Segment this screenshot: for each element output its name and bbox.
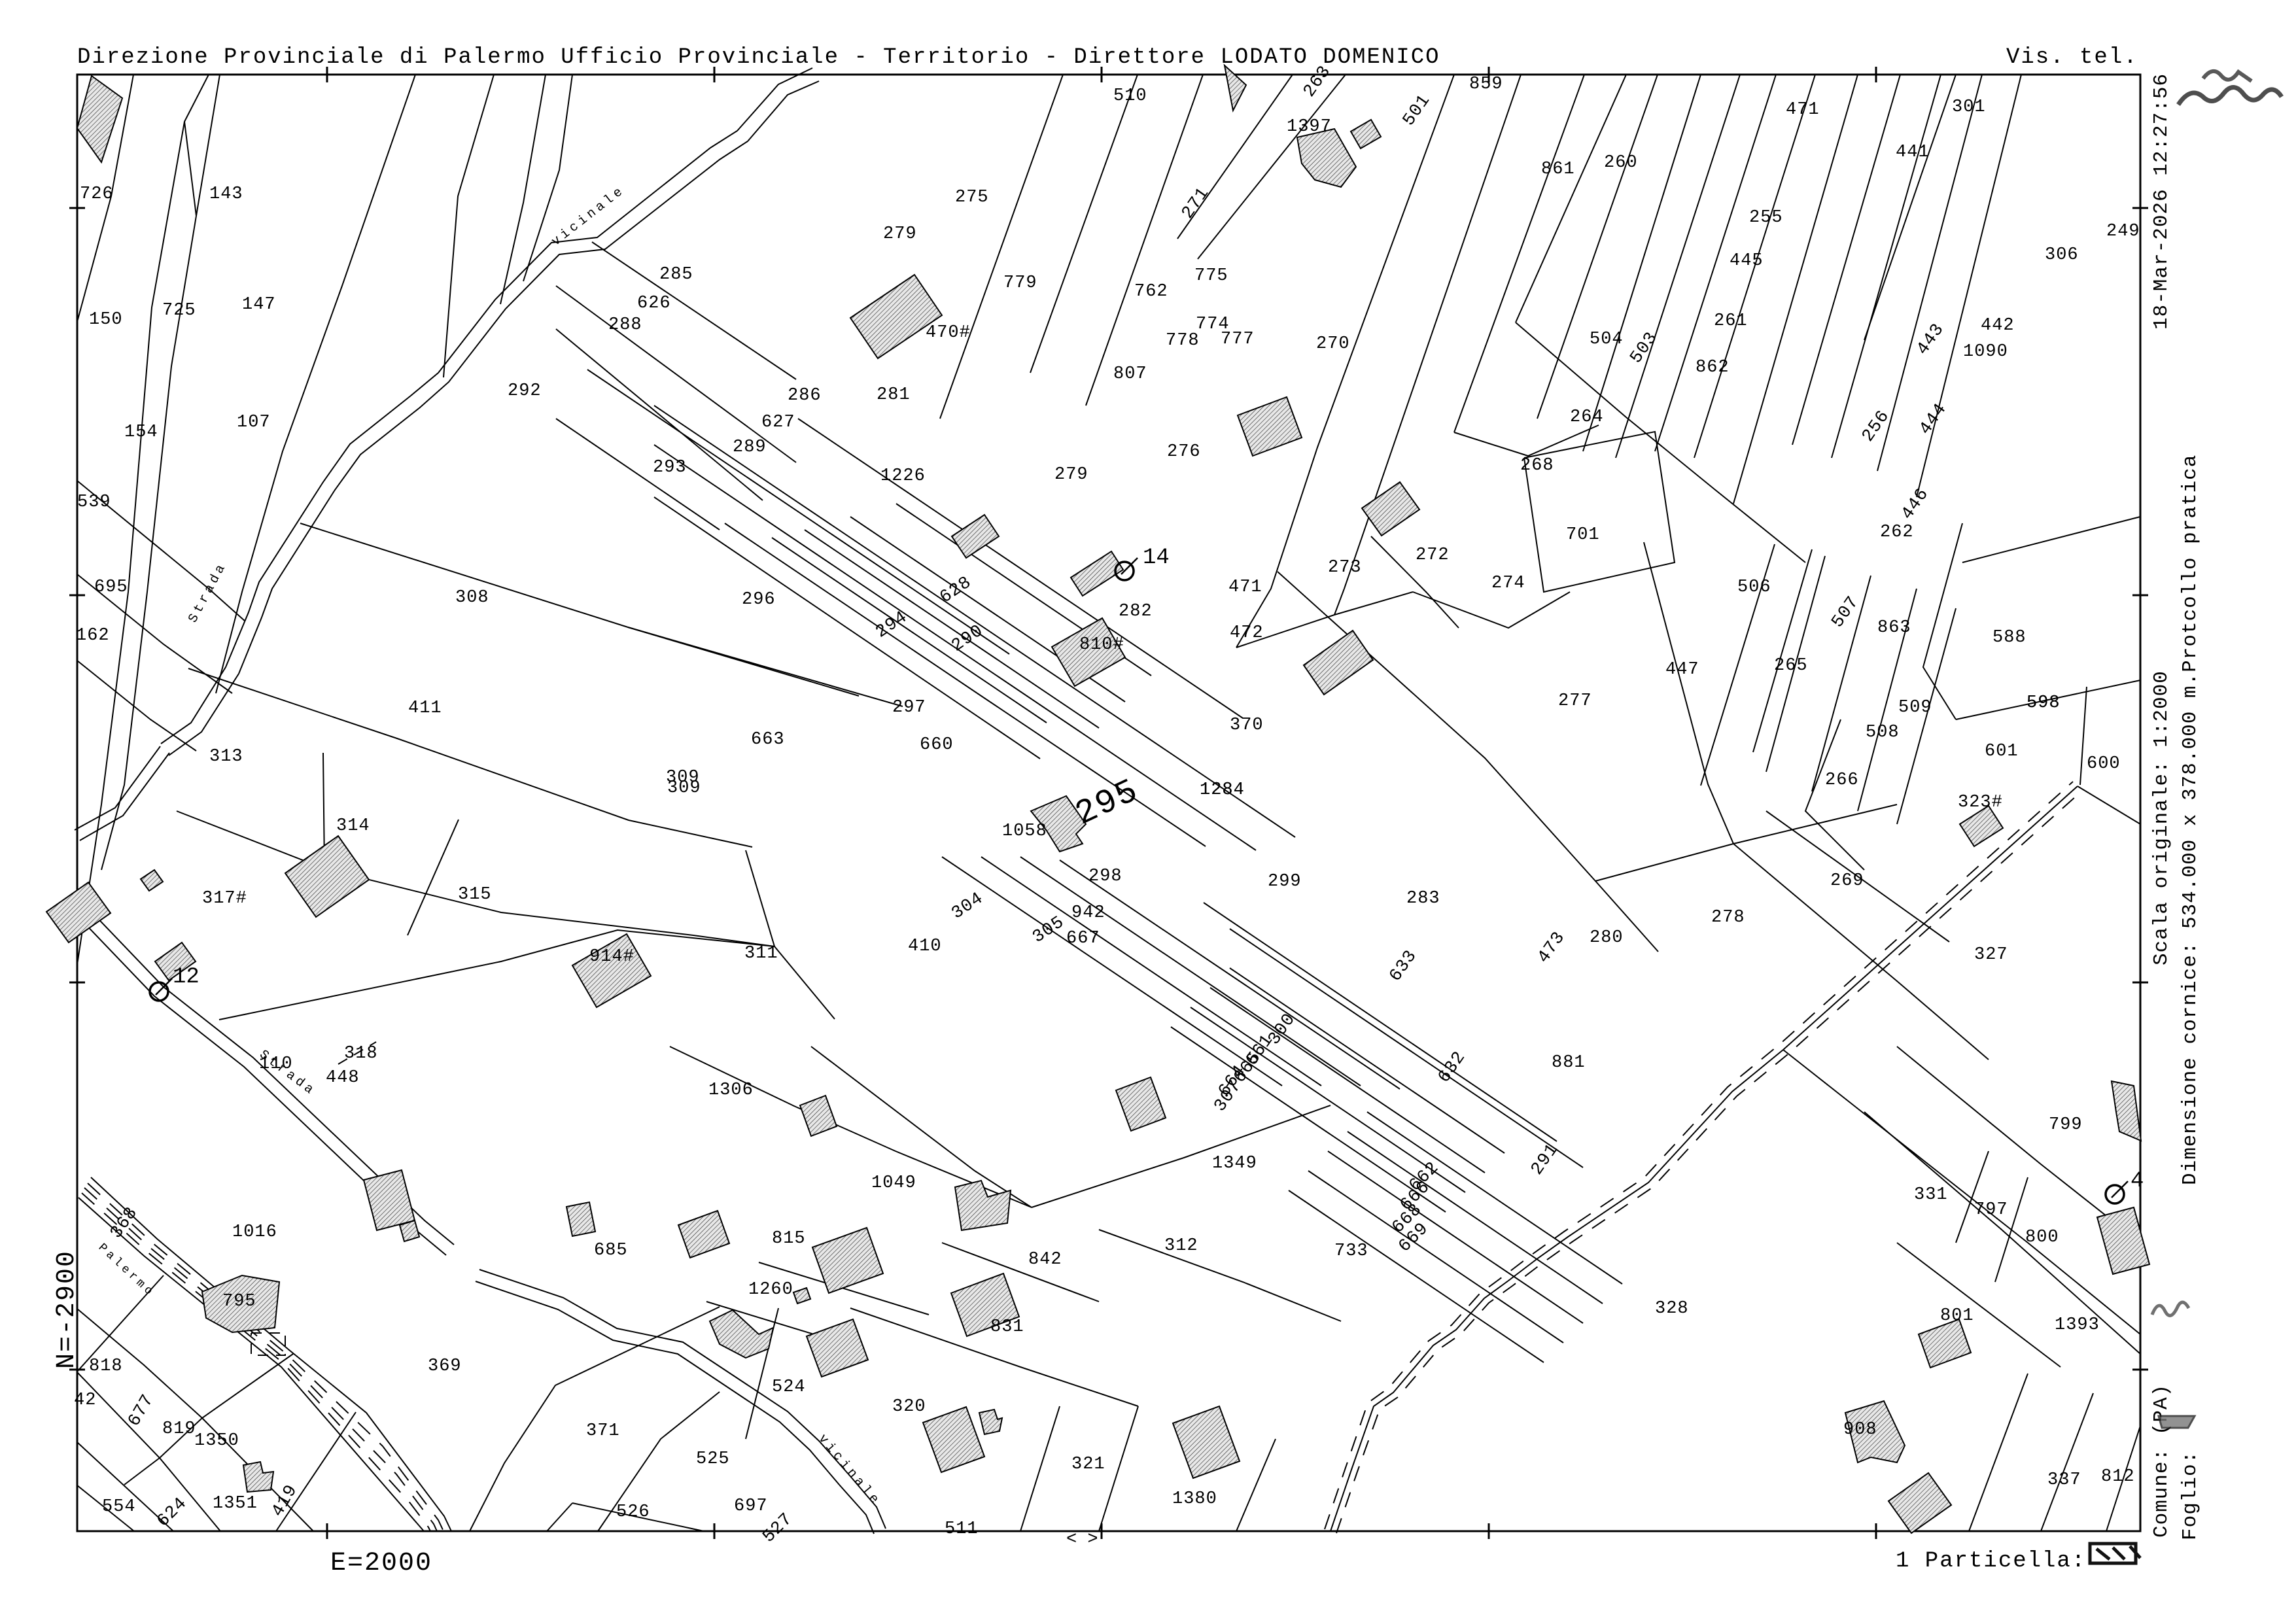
svg-text:598: 598 bbox=[2026, 693, 2061, 713]
svg-text:Dimensione cornice: 534.000 x: Dimensione cornice: 534.000 x 378.000 m.… bbox=[2179, 455, 2202, 1185]
svg-text:819: 819 bbox=[162, 1419, 196, 1439]
svg-text:< >: < > bbox=[1066, 1530, 1098, 1549]
svg-text:1393: 1393 bbox=[2055, 1315, 2100, 1335]
svg-text:733: 733 bbox=[1334, 1241, 1368, 1261]
svg-text:317#: 317# bbox=[202, 889, 247, 908]
svg-text:445: 445 bbox=[1730, 251, 1764, 271]
svg-text:4: 4 bbox=[2131, 1169, 2144, 1194]
svg-text:775: 775 bbox=[1194, 266, 1228, 286]
svg-text:278: 278 bbox=[1711, 908, 1745, 927]
svg-text:441: 441 bbox=[1896, 143, 1930, 162]
svg-text:369: 369 bbox=[428, 1357, 462, 1376]
svg-text:799: 799 bbox=[2049, 1115, 2083, 1135]
svg-text:249: 249 bbox=[2106, 222, 2140, 241]
svg-text:311: 311 bbox=[744, 944, 778, 963]
svg-text:725: 725 bbox=[162, 301, 196, 320]
svg-text:42: 42 bbox=[74, 1391, 96, 1410]
svg-text:279: 279 bbox=[1054, 465, 1088, 485]
svg-text:600: 600 bbox=[2087, 754, 2121, 774]
svg-text:289: 289 bbox=[733, 438, 767, 457]
svg-text:306: 306 bbox=[2045, 245, 2079, 265]
svg-text:524: 524 bbox=[772, 1377, 806, 1397]
svg-text:277: 277 bbox=[1558, 691, 1592, 711]
svg-text:777: 777 bbox=[1221, 330, 1255, 349]
svg-text:471: 471 bbox=[1786, 100, 1820, 120]
svg-text:1 Particella:: 1 Particella: bbox=[1896, 1549, 2086, 1574]
svg-text:1090: 1090 bbox=[1963, 342, 2008, 362]
svg-text:807: 807 bbox=[1113, 364, 1147, 384]
svg-text:309: 309 bbox=[667, 778, 701, 798]
svg-text:1397: 1397 bbox=[1287, 117, 1332, 137]
svg-text:296: 296 bbox=[742, 590, 776, 610]
svg-text:272: 272 bbox=[1416, 545, 1450, 565]
svg-text:539: 539 bbox=[77, 493, 111, 512]
svg-text:1349: 1349 bbox=[1212, 1154, 1257, 1173]
svg-text:697: 697 bbox=[734, 1497, 768, 1516]
svg-text:1351: 1351 bbox=[213, 1494, 258, 1514]
svg-text:Vis. tel.: Vis. tel. bbox=[2006, 45, 2138, 70]
svg-text:328: 328 bbox=[1655, 1299, 1689, 1319]
svg-text:281: 281 bbox=[877, 385, 911, 405]
svg-text:262: 262 bbox=[1880, 523, 1914, 542]
svg-text:795: 795 bbox=[222, 1292, 256, 1311]
svg-text:863: 863 bbox=[1877, 618, 1911, 638]
svg-text:275: 275 bbox=[955, 188, 989, 207]
svg-text:842: 842 bbox=[1028, 1250, 1062, 1270]
svg-text:107: 107 bbox=[237, 413, 271, 432]
svg-text:162: 162 bbox=[76, 626, 110, 646]
svg-text:801: 801 bbox=[1940, 1306, 1974, 1326]
svg-text:601: 601 bbox=[1985, 742, 2019, 761]
svg-text:447: 447 bbox=[1665, 660, 1699, 680]
svg-text:Comune: (PA): Comune: (PA) bbox=[2150, 1384, 2173, 1538]
svg-text:442: 442 bbox=[1981, 316, 2015, 336]
svg-text:308: 308 bbox=[455, 588, 489, 608]
svg-text:264: 264 bbox=[1570, 407, 1604, 427]
svg-text:831: 831 bbox=[990, 1317, 1024, 1337]
svg-text:859: 859 bbox=[1469, 75, 1503, 94]
svg-text:14: 14 bbox=[1143, 545, 1170, 570]
svg-text:762: 762 bbox=[1134, 282, 1168, 302]
svg-text:778: 778 bbox=[1166, 331, 1200, 351]
svg-text:626: 626 bbox=[637, 294, 671, 313]
svg-text:1049: 1049 bbox=[871, 1173, 916, 1193]
svg-text:1058: 1058 bbox=[1002, 822, 1047, 841]
svg-text:274: 274 bbox=[1491, 574, 1525, 593]
svg-text:293: 293 bbox=[653, 458, 687, 477]
svg-text:297: 297 bbox=[892, 698, 926, 718]
svg-text:337: 337 bbox=[2047, 1470, 2081, 1490]
svg-text:810#: 810# bbox=[1079, 635, 1124, 655]
svg-text:1350: 1350 bbox=[194, 1431, 239, 1451]
svg-text:800: 800 bbox=[2025, 1228, 2059, 1247]
svg-text:526: 526 bbox=[616, 1502, 650, 1522]
svg-text:1380: 1380 bbox=[1172, 1489, 1217, 1509]
svg-text:695: 695 bbox=[94, 578, 128, 597]
svg-text:279: 279 bbox=[883, 224, 917, 244]
svg-text:472: 472 bbox=[1230, 623, 1264, 643]
svg-text:268: 268 bbox=[1520, 456, 1554, 476]
svg-text:663: 663 bbox=[751, 730, 785, 750]
svg-text:270: 270 bbox=[1316, 334, 1350, 354]
svg-text:701: 701 bbox=[1566, 525, 1600, 545]
svg-text:881: 881 bbox=[1552, 1053, 1586, 1073]
svg-text:331: 331 bbox=[1914, 1185, 1948, 1205]
svg-text:411: 411 bbox=[408, 699, 442, 718]
svg-text:370: 370 bbox=[1230, 716, 1264, 735]
svg-text:509: 509 bbox=[1898, 698, 1932, 718]
svg-text:410: 410 bbox=[908, 937, 942, 956]
svg-text:286: 286 bbox=[788, 386, 822, 406]
svg-text:511: 511 bbox=[945, 1519, 979, 1539]
svg-text:914#: 914# bbox=[589, 947, 635, 967]
svg-text:Direzione Provinciale di Paler: Direzione Provinciale di Palermo Ufficio… bbox=[77, 45, 1440, 70]
svg-text:298: 298 bbox=[1088, 867, 1122, 886]
svg-text:260: 260 bbox=[1604, 153, 1638, 173]
svg-text:315: 315 bbox=[458, 885, 492, 905]
svg-text:255: 255 bbox=[1749, 208, 1783, 228]
svg-text:301: 301 bbox=[1952, 97, 1986, 117]
svg-text:273: 273 bbox=[1328, 558, 1362, 578]
svg-text:Scala originale: 1:2000: Scala originale: 1:2000 bbox=[2150, 670, 2173, 965]
svg-text:908: 908 bbox=[1843, 1420, 1877, 1440]
svg-text:143: 143 bbox=[209, 184, 243, 204]
svg-text:1306: 1306 bbox=[708, 1081, 754, 1100]
svg-text:320: 320 bbox=[892, 1397, 926, 1417]
svg-text:862: 862 bbox=[1696, 358, 1730, 377]
svg-text:154: 154 bbox=[124, 423, 158, 442]
svg-text:1226: 1226 bbox=[880, 466, 926, 486]
svg-text:627: 627 bbox=[761, 413, 795, 432]
svg-text:470#: 470# bbox=[926, 323, 971, 343]
svg-text:1016: 1016 bbox=[232, 1222, 277, 1242]
svg-text:285: 285 bbox=[659, 265, 693, 285]
svg-text:313: 313 bbox=[209, 747, 243, 767]
svg-text:266: 266 bbox=[1825, 770, 1859, 790]
svg-text:18-Mar-2026 12:27:56: 18-Mar-2026 12:27:56 bbox=[2150, 73, 2173, 330]
svg-text:667: 667 bbox=[1066, 929, 1100, 948]
svg-text:506: 506 bbox=[1737, 578, 1771, 597]
svg-text:861: 861 bbox=[1541, 160, 1575, 179]
svg-text:508: 508 bbox=[1866, 723, 1900, 742]
svg-text:312: 312 bbox=[1164, 1236, 1198, 1256]
svg-text:448: 448 bbox=[326, 1068, 360, 1088]
svg-text:299: 299 bbox=[1268, 872, 1302, 891]
svg-text:265: 265 bbox=[1774, 656, 1808, 676]
svg-text:150: 150 bbox=[89, 310, 123, 330]
svg-text:147: 147 bbox=[242, 295, 276, 315]
svg-text:797: 797 bbox=[1974, 1200, 2008, 1220]
svg-text:815: 815 bbox=[772, 1229, 806, 1249]
svg-text:314: 314 bbox=[336, 816, 370, 836]
svg-text:726: 726 bbox=[80, 184, 114, 204]
svg-text:323#: 323# bbox=[1958, 793, 2003, 812]
svg-text:283: 283 bbox=[1406, 889, 1440, 908]
svg-text:Foglio:: Foglio: bbox=[2179, 1451, 2202, 1540]
svg-text:779: 779 bbox=[1003, 273, 1037, 293]
svg-text:318: 318 bbox=[344, 1044, 378, 1064]
svg-text:269: 269 bbox=[1830, 871, 1864, 891]
svg-text:288: 288 bbox=[608, 315, 642, 335]
svg-text:261: 261 bbox=[1714, 311, 1748, 331]
svg-text:280: 280 bbox=[1590, 928, 1624, 948]
svg-text:327: 327 bbox=[1974, 945, 2008, 965]
svg-text:1260: 1260 bbox=[748, 1280, 793, 1300]
svg-text:1284: 1284 bbox=[1200, 780, 1245, 800]
svg-text:321: 321 bbox=[1071, 1455, 1105, 1474]
svg-text:510: 510 bbox=[1113, 86, 1147, 106]
svg-text:818: 818 bbox=[89, 1357, 123, 1376]
svg-text:282: 282 bbox=[1119, 602, 1153, 621]
svg-text:525: 525 bbox=[696, 1449, 730, 1469]
svg-text:660: 660 bbox=[920, 735, 954, 755]
svg-text:812: 812 bbox=[2101, 1467, 2135, 1487]
svg-text:E=2000: E=2000 bbox=[330, 1549, 432, 1578]
svg-text:12: 12 bbox=[173, 965, 200, 990]
svg-text:371: 371 bbox=[586, 1421, 620, 1441]
svg-text:554: 554 bbox=[102, 1497, 136, 1517]
svg-text:504: 504 bbox=[1590, 330, 1624, 349]
svg-text:685: 685 bbox=[594, 1241, 628, 1260]
svg-text:588: 588 bbox=[1992, 628, 2026, 648]
svg-text:292: 292 bbox=[508, 381, 542, 401]
svg-text:276: 276 bbox=[1167, 442, 1201, 462]
svg-text:471: 471 bbox=[1228, 578, 1262, 597]
svg-text:942: 942 bbox=[1071, 903, 1105, 923]
